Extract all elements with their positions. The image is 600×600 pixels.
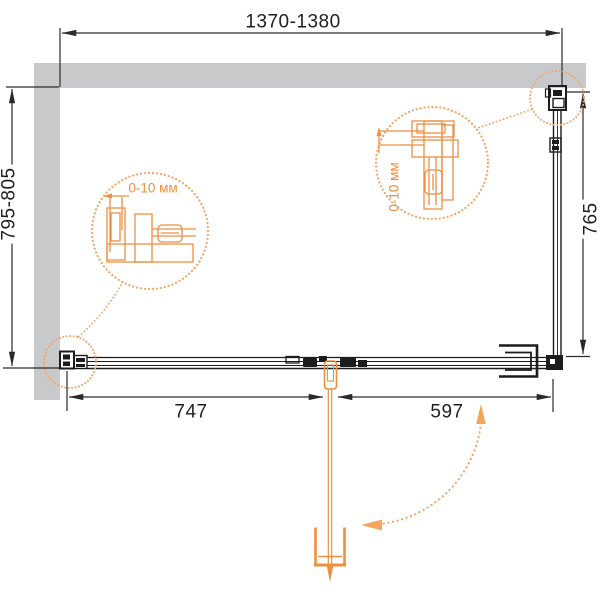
- arc-arrowhead-up: [476, 404, 486, 424]
- door-edge-tip: [327, 566, 333, 582]
- plan-drawing-svg: [0, 0, 600, 600]
- dim-depth-left-label: 795-805: [0, 164, 19, 243]
- detail-leader-left: [77, 282, 123, 338]
- wall-profile-left: [60, 352, 87, 369]
- door-open-panel: [325, 361, 337, 582]
- dimension-bottom-spans: [67, 371, 553, 412]
- dim-depth-right-label: 765: [582, 199, 600, 238]
- wall-top: [34, 63, 586, 88]
- arc-arrowhead-left: [361, 520, 382, 531]
- technical-drawing: 1370-1380 795-805 765 747 597 0-10 мм 0-…: [0, 0, 600, 600]
- detail-leader-right: [472, 109, 533, 130]
- door-handle: [314, 528, 346, 566]
- dim-width-top-label: 1370-1380: [245, 13, 340, 32]
- dim-span-right-label: 597: [430, 403, 463, 422]
- callout-left-gap-label: 0-10 мм: [128, 181, 177, 195]
- corner-profile-top-right: [546, 86, 567, 152]
- callout-right-gap-label: 0-10 мм: [387, 162, 401, 211]
- dim-span-left-label: 747: [174, 403, 207, 422]
- swing-arc-arrow: [361, 404, 486, 531]
